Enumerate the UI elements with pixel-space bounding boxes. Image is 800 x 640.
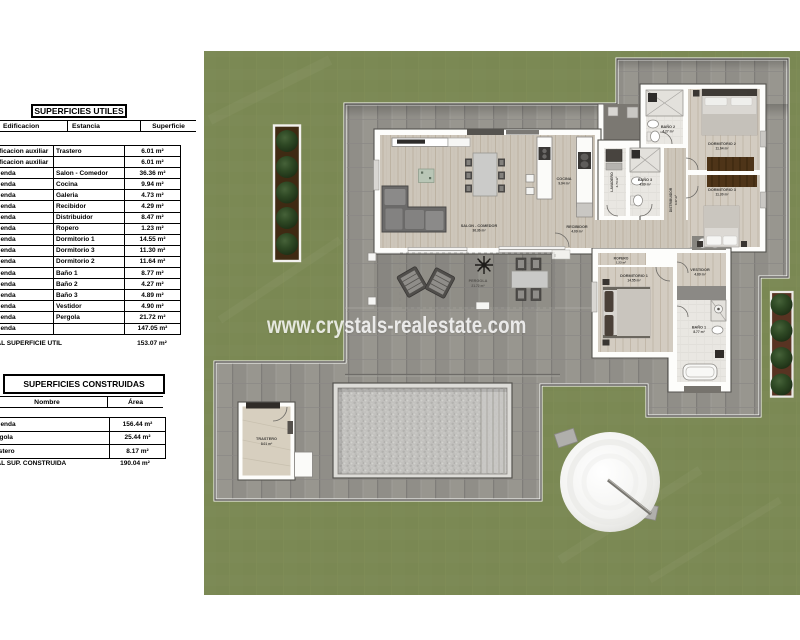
svg-text:1.23 m²: 1.23 m² bbox=[616, 261, 626, 265]
svg-text:DORMITORIO 1: DORMITORIO 1 bbox=[620, 274, 648, 278]
svg-text:DORMITORIO 3: DORMITORIO 3 bbox=[708, 188, 736, 192]
svg-text:36.36 m²: 36.36 m² bbox=[472, 229, 486, 233]
svg-text:11.64 m²: 11.64 m² bbox=[715, 147, 729, 151]
svg-text:3.47 m²: 3.47 m² bbox=[674, 195, 678, 205]
svg-text:TRASTERO: TRASTERO bbox=[256, 437, 277, 441]
svg-text:DISTRIBUIDOR: DISTRIBUIDOR bbox=[669, 187, 673, 212]
svg-text:21.72 m²: 21.72 m² bbox=[471, 284, 485, 288]
svg-text:8.77 m²: 8.77 m² bbox=[693, 330, 705, 334]
svg-text:BAÑO 1: BAÑO 1 bbox=[692, 325, 706, 330]
svg-text:14.55 m²: 14.55 m² bbox=[627, 279, 641, 283]
svg-text:BAÑO 3: BAÑO 3 bbox=[638, 177, 652, 182]
svg-text:SALON - COMEDOR: SALON - COMEDOR bbox=[461, 224, 498, 228]
svg-text:4.27 m²: 4.27 m² bbox=[662, 130, 674, 134]
svg-text:8.01 m²: 8.01 m² bbox=[261, 442, 273, 446]
svg-text:BAÑO 2: BAÑO 2 bbox=[661, 124, 675, 129]
svg-text:4.89 m²: 4.89 m² bbox=[639, 183, 651, 187]
svg-text:PERGOLA: PERGOLA bbox=[469, 279, 488, 283]
svg-text:VESTIDOR: VESTIDOR bbox=[690, 268, 710, 272]
svg-text:DORMITORIO 2: DORMITORIO 2 bbox=[708, 142, 736, 146]
svg-text:RECIBIDOR: RECIBIDOR bbox=[566, 225, 588, 229]
svg-text:4.89 m²: 4.89 m² bbox=[694, 273, 706, 277]
svg-text:4.73 m²: 4.73 m² bbox=[615, 177, 619, 188]
svg-text:11.30 m²: 11.30 m² bbox=[715, 193, 729, 197]
svg-text:9.94 m²: 9.94 m² bbox=[558, 182, 570, 186]
svg-text:COCINA: COCINA bbox=[557, 177, 572, 181]
svg-text:4.09 m²: 4.09 m² bbox=[571, 230, 583, 234]
svg-text:LAVADERO: LAVADERO bbox=[610, 172, 614, 192]
